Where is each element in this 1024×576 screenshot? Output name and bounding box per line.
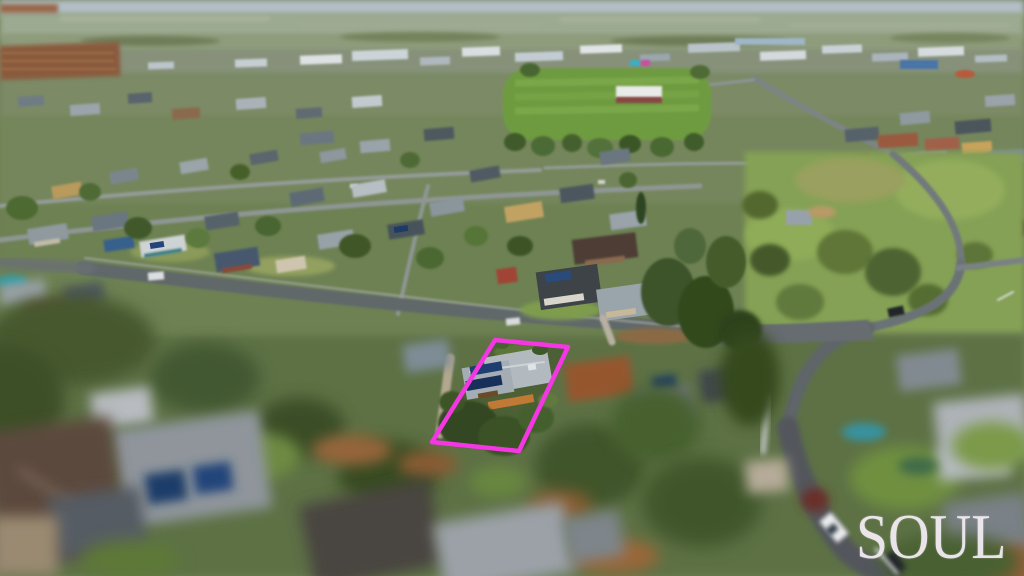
aerial-photo: SOUL xyxy=(0,0,1024,576)
scene-texture xyxy=(0,4,58,13)
street-tree xyxy=(6,196,38,220)
scene-texture xyxy=(580,44,622,53)
scene-texture xyxy=(150,343,260,413)
scene-texture xyxy=(186,228,210,248)
scene-texture xyxy=(690,65,710,79)
parked-car xyxy=(148,271,165,280)
solar-panels xyxy=(192,461,234,494)
oval-clubhouse xyxy=(616,86,662,98)
scene-texture xyxy=(235,58,267,67)
scene-texture xyxy=(900,60,938,69)
scene-texture xyxy=(750,244,790,276)
scene-texture xyxy=(955,70,975,78)
scene-texture xyxy=(400,152,420,168)
scene-texture xyxy=(520,63,540,77)
scene-texture xyxy=(720,330,780,426)
scene-texture xyxy=(688,42,740,53)
scene-texture xyxy=(735,38,805,45)
scene-texture xyxy=(496,267,518,285)
scene-texture xyxy=(650,137,674,157)
scene-texture xyxy=(890,33,1010,43)
scene-texture xyxy=(255,216,281,236)
scene-texture xyxy=(18,95,45,107)
scene-texture xyxy=(878,133,919,149)
scene-texture xyxy=(124,217,152,239)
pencil-pine xyxy=(636,192,646,224)
scene-texture xyxy=(470,466,526,498)
scene-texture xyxy=(684,133,704,151)
scene-texture xyxy=(776,284,824,320)
dirt-patch xyxy=(312,435,392,465)
warehouse-roof xyxy=(352,49,408,61)
scene-texture xyxy=(641,60,650,66)
scene-texture xyxy=(898,457,938,475)
scene-texture xyxy=(464,226,488,246)
scene-texture xyxy=(0,516,58,576)
playground xyxy=(808,206,836,218)
scene-texture xyxy=(504,133,526,151)
scene-texture xyxy=(340,32,500,42)
warehouse-roof xyxy=(300,54,342,64)
scene-texture xyxy=(822,44,862,53)
bottlebrush-tree xyxy=(801,488,829,512)
scene-texture xyxy=(745,458,790,494)
scene-texture xyxy=(352,95,383,108)
scene-texture xyxy=(896,348,962,391)
scene-texture xyxy=(562,134,582,152)
scene-texture xyxy=(416,247,444,269)
scene-texture xyxy=(296,107,323,119)
scene-texture xyxy=(616,97,662,103)
solar-panels xyxy=(144,469,188,504)
scene-texture xyxy=(865,248,921,296)
scene-texture xyxy=(918,46,964,57)
car xyxy=(506,317,521,325)
scene-texture xyxy=(420,56,450,65)
scene-texture xyxy=(79,183,101,201)
scene-texture xyxy=(515,51,563,62)
scene-texture xyxy=(462,46,500,56)
scene-texture xyxy=(562,509,625,564)
brand-watermark-text: SOUL xyxy=(856,501,1006,572)
scene-texture xyxy=(0,68,116,70)
scene-texture xyxy=(560,17,760,22)
scene-texture xyxy=(507,236,533,256)
scene-texture xyxy=(630,60,640,66)
scene-texture xyxy=(975,54,1007,62)
scene-texture xyxy=(925,137,960,151)
scene-texture xyxy=(60,16,270,21)
scene-texture xyxy=(598,180,605,184)
scene-texture xyxy=(985,94,1016,107)
scene-texture xyxy=(128,92,153,104)
scene-texture xyxy=(795,158,905,202)
scene-texture xyxy=(70,103,101,116)
scene-texture xyxy=(300,22,540,27)
scene-texture xyxy=(531,136,555,156)
scene-texture xyxy=(674,228,706,264)
scene-texture xyxy=(236,97,267,110)
scene-texture xyxy=(172,107,201,120)
scene-texture xyxy=(0,262,90,269)
scene-texture xyxy=(230,164,250,180)
scene-texture xyxy=(611,386,701,462)
scene-texture xyxy=(2,52,114,54)
scene-texture xyxy=(339,234,371,258)
scene-texture xyxy=(742,191,778,219)
scene-texture xyxy=(619,172,637,188)
swimming-pool xyxy=(842,423,886,441)
scene-texture xyxy=(398,451,458,477)
brand-watermark: SOUL xyxy=(856,505,1006,569)
scene-texture xyxy=(790,23,1010,28)
scene-canvas xyxy=(0,0,1024,576)
scene-texture xyxy=(642,457,762,547)
park-tree xyxy=(817,230,873,274)
scene-texture xyxy=(706,236,746,288)
scene-texture xyxy=(0,60,114,62)
scene-texture xyxy=(148,62,174,70)
scene-texture xyxy=(760,50,806,61)
